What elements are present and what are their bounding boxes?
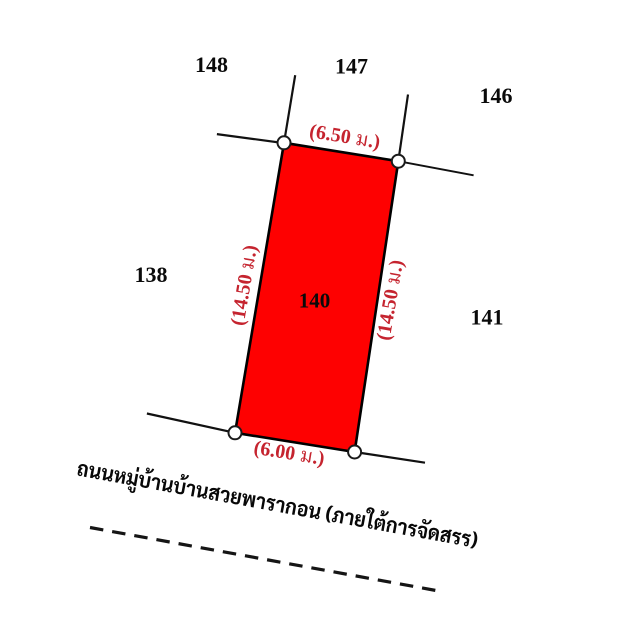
svg-text:141: 141 bbox=[471, 305, 504, 330]
svg-text:146: 146 bbox=[480, 83, 513, 108]
svg-text:147: 147 bbox=[335, 53, 368, 78]
svg-text:138: 138 bbox=[135, 262, 168, 287]
svg-text:140: 140 bbox=[299, 288, 331, 312]
svg-text:148: 148 bbox=[195, 52, 228, 77]
